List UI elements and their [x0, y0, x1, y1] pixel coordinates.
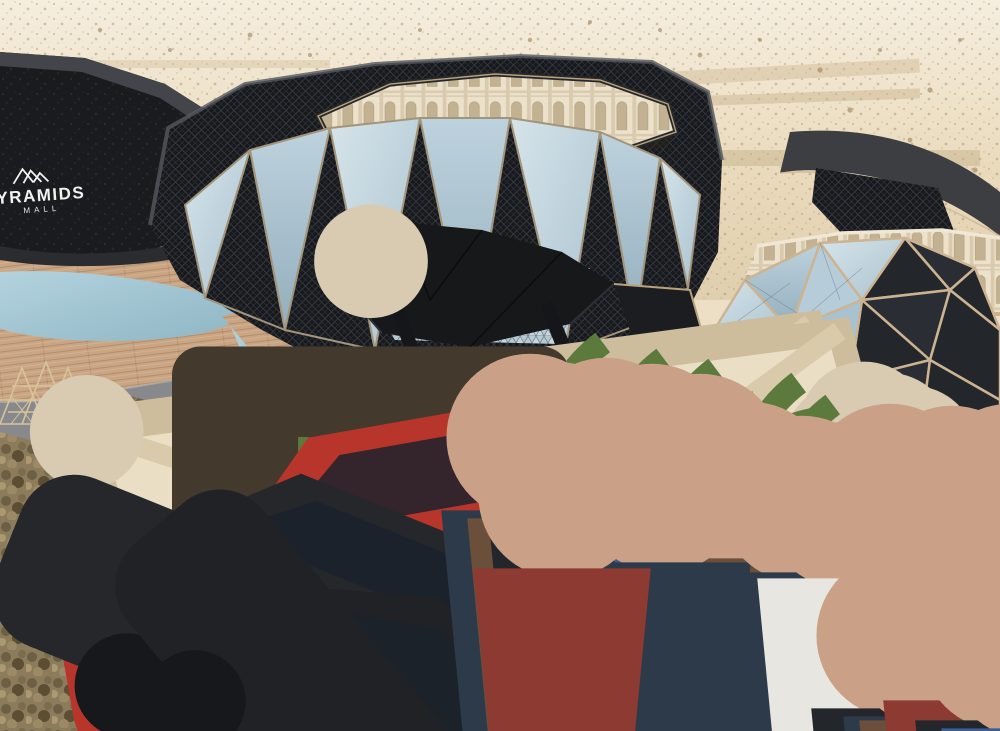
scene-svg: YRAMIDS MALL — [0, 0, 1000, 731]
architectural-rendering: YRAMIDS MALL — [0, 0, 1000, 731]
pedestrians — [441, 354, 1000, 731]
